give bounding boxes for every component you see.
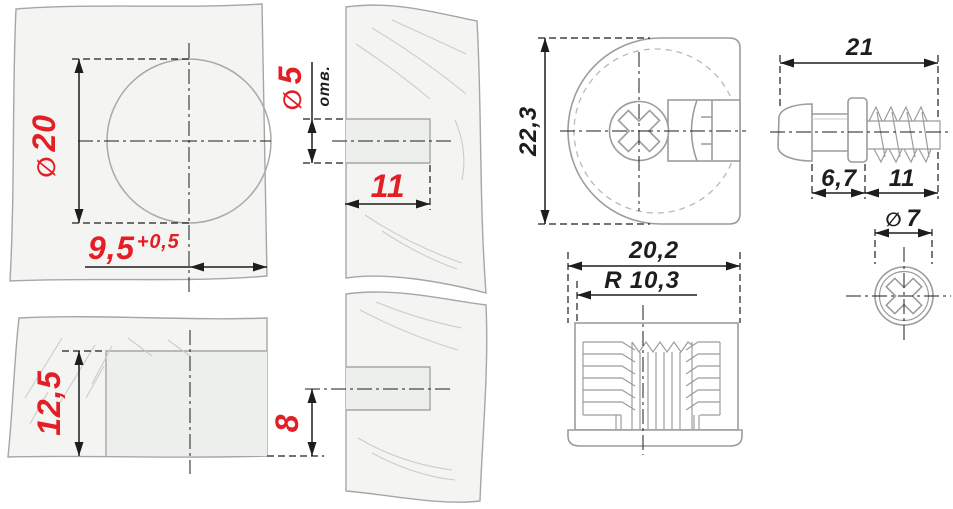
dowel-end-view: ∅7 [846,205,951,343]
dim-head-diameter: ∅7 [885,205,921,232]
dim-pilot-hole-note: отв. [316,65,333,106]
dowel-side-view: 21 6,7 11 [770,34,950,199]
panel-face-bottom-view: 12,5 [8,317,267,474]
dim-cam-radius: R 10,3 [604,267,680,294]
dowel-collar [848,98,867,162]
cam-flange [568,430,742,446]
dim-recess-depth: 12,5 [31,370,67,436]
cam-front-view: 22,3 [515,38,746,224]
panel-edge-bottom-view: 8 [267,292,487,502]
panel-face-top-view: ∅20 9,5+0,5 [10,4,271,292]
cam-fitting-drawing: ∅20 9,5+0,5 ∅5 отв. 11 12,5 [0,0,953,509]
technical-drawing-page: ∅20 9,5+0,5 ∅5 отв. 11 12,5 [0,0,953,509]
dim-hole-offset: 8 [269,414,305,433]
cam-recess [106,351,267,456]
cam-bottom-view: 20,2 R 10,3 [568,237,742,455]
dim-pilot-depth: 11 [371,168,406,204]
dim-dowel-length: 21 [845,34,874,61]
dim-dowel-thread: 11 [889,165,916,192]
dim-cam-width: 20,2 [628,237,679,264]
panel-edge-top-view: ∅5 отв. 11 [272,5,486,293]
dowel-thread [867,107,940,162]
dim-dowel-neck: 6,7 [821,165,858,192]
dim-pilot-diameter: ∅5 [272,65,308,110]
dim-cam-height: 22,3 [515,106,542,157]
